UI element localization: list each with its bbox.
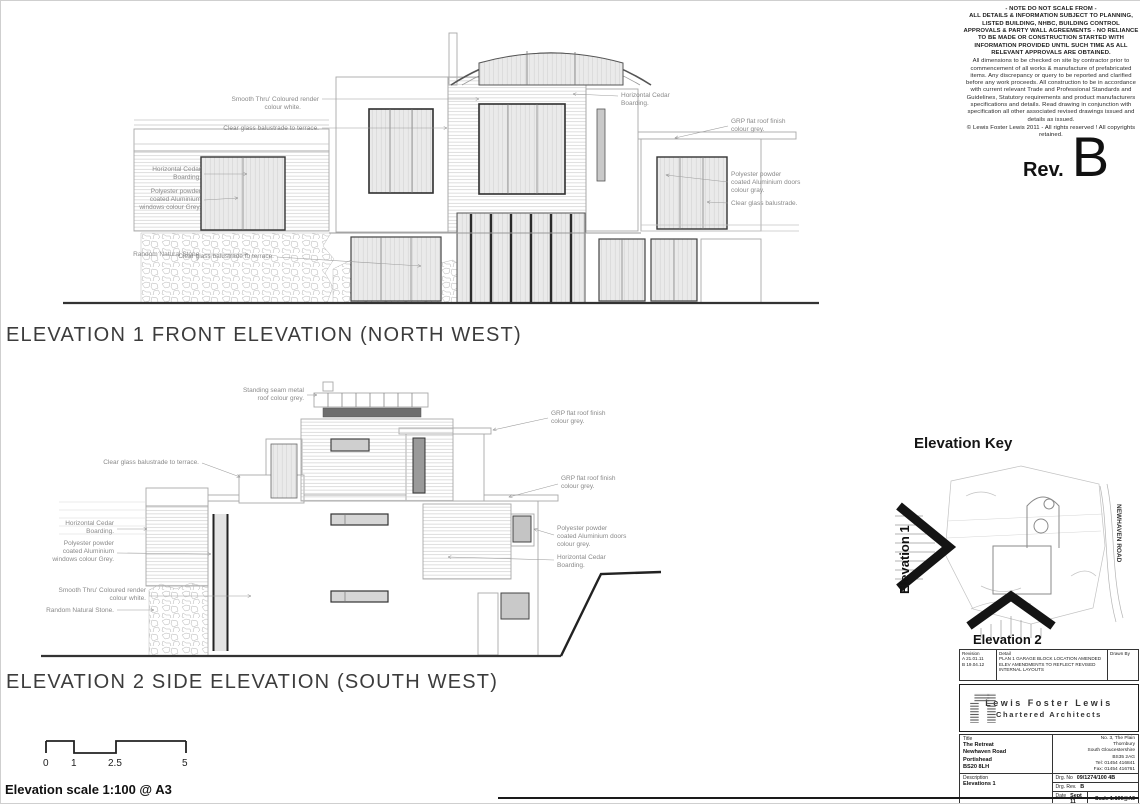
revision-table: Revision A 21.01.11 B 19.04.12 Detail PL…	[959, 649, 1139, 681]
annotation-cedar: Horizontal Cedar	[65, 520, 115, 527]
annotation-render-2: colour white.	[265, 104, 302, 111]
office-address-cell: No. 3, The Plain Thornbury South Glouces…	[1053, 735, 1138, 773]
annotation-cedar-right: Horizontal Cedar	[621, 92, 671, 99]
drg-rev-label: Drg. Rev.	[1056, 784, 1077, 790]
drg-no-value: 09/1274/100 4B	[1077, 775, 1115, 781]
annotation-grp: GRP flat roof finish	[731, 118, 786, 125]
scale-bar-shape	[46, 741, 186, 753]
revision-label: Rev.	[1023, 159, 1064, 182]
annotation-doors: Polyester powder	[557, 525, 608, 532]
annotation-cedar-2: Boarding.	[173, 174, 201, 181]
elevation-key-plan: Elevation 1 Elevation 2 NEWHAVEN ROAD	[881, 426, 1140, 661]
detail-column: Detail PLAN 1 GARAGE BLOCK LOCATION AMEN…	[997, 650, 1108, 680]
elevation-key-label-1: Elevation 1	[897, 525, 912, 594]
annotation-cedar: Horizontal Cedar	[152, 166, 202, 173]
elevation2-ground-slope	[561, 572, 661, 656]
disclaimer-heading: - NOTE DO NOT SCALE FROM -	[963, 6, 1139, 13]
elevation-key-label-2: Elevation 2	[973, 632, 1042, 647]
annotation-seam-roof: Standing seam metal	[243, 387, 305, 394]
firm-banner: Lewis Foster Lewis Chartered Architects	[959, 684, 1139, 732]
elevation2-roof-slab-dark	[323, 408, 421, 417]
elevation2-drawing: Standing seam metal roof colour grey. Cl…	[1, 366, 701, 666]
disclaimer-note: - NOTE DO NOT SCALE FROM - ALL DETAILS &…	[963, 6, 1139, 140]
annotation-grp1-2: colour grey.	[551, 418, 585, 425]
elevation2-title: ELEVATION 2 SIDE ELEVATION (SOUTH WEST)	[6, 671, 498, 694]
annotation-windows-3: windows colour Grey.	[138, 204, 201, 211]
annotation-cedar-right: Horizontal Cedar	[557, 554, 607, 561]
detail-row-b: ELEV AMENDMENTS TO REFLECT REVISED INTER…	[999, 662, 1105, 673]
project-line-2: Newhaven Road	[963, 749, 1049, 756]
drg-rev-value: B	[1080, 784, 1084, 790]
annotation-windows-3: windows colour Grey.	[51, 556, 114, 563]
annotation-doors-3: colour grey.	[557, 541, 591, 548]
firm-logo	[964, 691, 1004, 725]
scale-tick-1: 1	[71, 758, 77, 769]
sheet-border-line	[498, 797, 1139, 799]
project-line-4: BS20 8LH	[963, 764, 1049, 771]
drawn-by-column: Drawn By	[1108, 650, 1138, 680]
annotation-grp2-2: colour grey.	[561, 483, 595, 490]
drawn-by-header: Drawn By	[1110, 651, 1136, 656]
leader-line	[202, 463, 240, 477]
annotation-render-2: colour white.	[110, 595, 147, 602]
annotation-balustrade-right: Clear glass balustrade.	[731, 200, 798, 207]
disclaimer-body: All dimensions to be checked on site by …	[963, 58, 1139, 124]
site-plan-sketch	[945, 466, 1123, 624]
annotation-doors-2: coated Aluminium doors	[731, 179, 801, 186]
annotation-windows-2: coated Aluminium	[63, 548, 114, 555]
scale-tick-2: 2.5	[108, 758, 122, 769]
annotation-seam-roof-2: roof colour grey.	[258, 395, 305, 402]
annotation-balustrade-low: Clear glass balustrade to terrace.	[178, 253, 274, 260]
annotation-balustrade: Clear glass balustrade to terrace.	[103, 459, 199, 466]
annotation-render: Smooth Thru' Coloured render	[232, 96, 320, 103]
revision-column: Revision A 21.01.11 B 19.04.12	[960, 650, 997, 680]
elevation1-central-glazing	[457, 213, 585, 303]
description-value: Elevations 1	[963, 781, 1049, 788]
project-line-1: The Retreat	[963, 742, 1049, 749]
elevation1-drawing: Smooth Thru' Coloured render colour whit…	[1, 1, 861, 316]
annotation-grp-2: colour grey.	[731, 126, 765, 133]
site-plan-house	[993, 497, 1059, 594]
scale-note: Elevation scale 1:100 @ A3	[5, 782, 172, 797]
annotation-windows: Polyester powder	[151, 188, 202, 195]
annotation-balustrade-top: Clear glass balustrade to terrace.	[223, 125, 319, 132]
drg-no-label: Drg. No	[1056, 775, 1073, 781]
revision-value: B	[1072, 129, 1109, 185]
revision-stamp: Rev. B	[1001, 129, 1131, 185]
office-line-6: Fax: 01454 416761	[1056, 767, 1135, 773]
elevation1-title: ELEVATION 1 FRONT ELEVATION (NORTH WEST)	[6, 324, 522, 347]
road-label: NEWHAVEN ROAD	[1115, 504, 1122, 563]
scale-bar: 0 1 2.5 5	[29, 733, 219, 777]
annotation-doors-3: colour gray.	[731, 187, 765, 194]
scale-tick-0: 0	[43, 758, 49, 769]
project-title-cell: Title The Retreat Newhaven Road Portishe…	[960, 735, 1053, 773]
annotation-windows-2: coated Aluminium	[150, 196, 201, 203]
title-block-info: Title The Retreat Newhaven Road Portishe…	[959, 734, 1139, 804]
leader-line	[493, 418, 548, 430]
project-line-3: Portishead	[963, 757, 1049, 764]
title-block: Revision A 21.01.11 B 19.04.12 Detail PL…	[959, 649, 1139, 804]
description-cell: Description Elevations 1	[960, 774, 1053, 804]
annotation-doors: Polyester powder	[731, 171, 782, 178]
drawing-number-cell: Drg. No 09/1274/100 4B Drg. Rev. B Date …	[1053, 774, 1138, 804]
annotation-stone: Random Natural Stone.	[46, 607, 114, 614]
annotation-windows: Polyester powder	[64, 540, 115, 547]
annotation-render: Smooth Thru' Coloured render	[59, 587, 147, 594]
elevation1-arched-window	[479, 53, 623, 85]
annotation-cedar-right-2: Boarding.	[621, 100, 649, 107]
annotation-grp1: GRP flat roof finish	[551, 410, 606, 417]
annotation-cedar-2: Boarding.	[86, 528, 114, 535]
revision-row-b: B 19.04.12	[962, 662, 994, 668]
annotation-doors-2: coated Aluminium doors	[557, 533, 627, 540]
scale-tick-3: 5	[182, 758, 188, 769]
annotation-grp2: GRP flat roof finish	[561, 475, 616, 482]
drawing-sheet: - NOTE DO NOT SCALE FROM - ALL DETAILS &…	[0, 0, 1140, 804]
elevation2-stone	[149, 583, 208, 656]
annotation-cedar-right-2: Boarding.	[557, 562, 585, 569]
